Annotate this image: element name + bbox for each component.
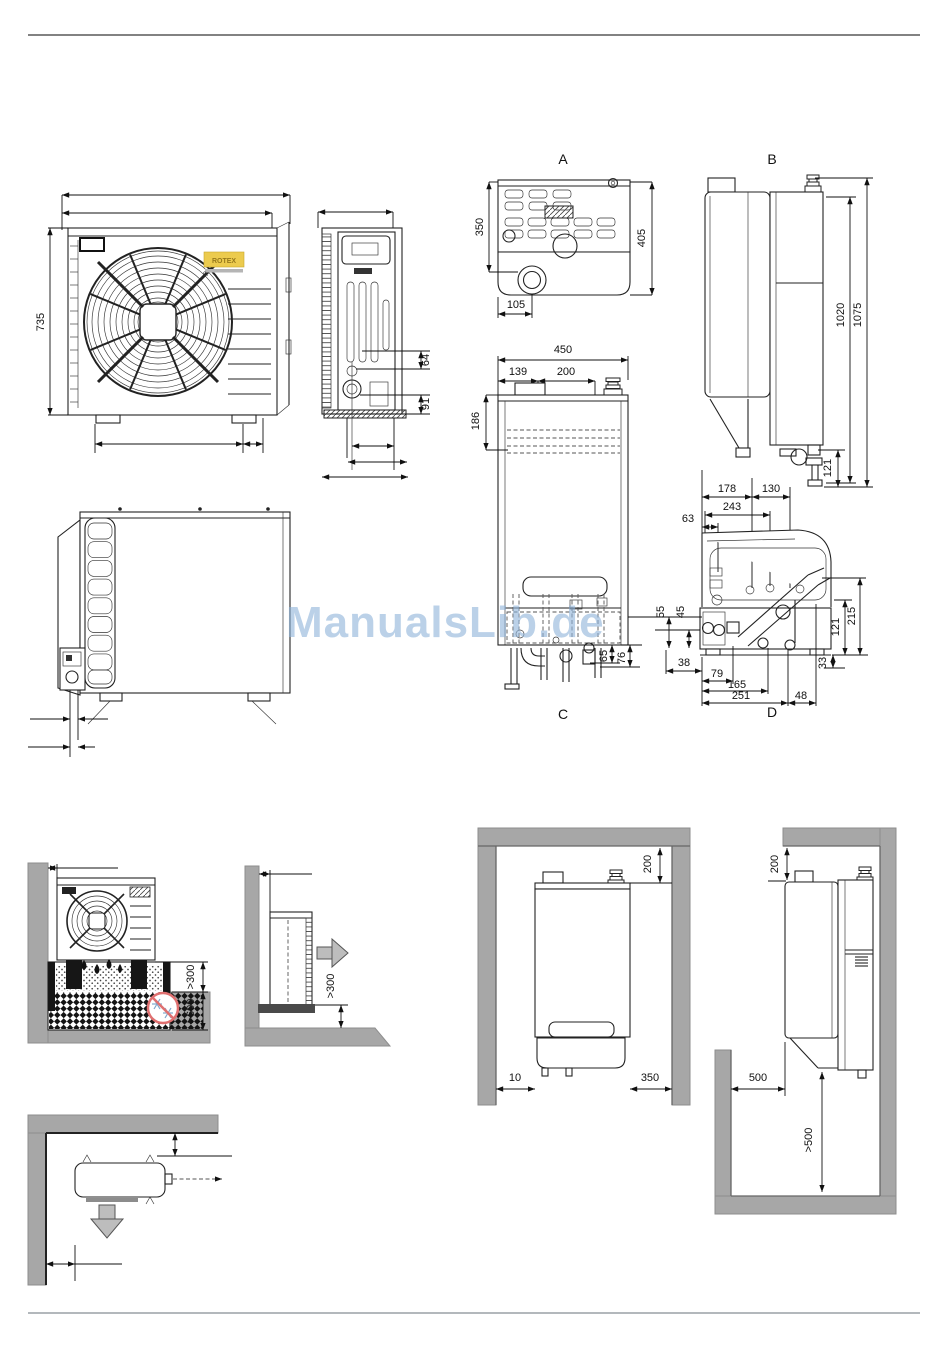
floor [245,1028,390,1046]
wall [880,828,896,1214]
install-clearance-ground: >300 >600 [28,863,210,1043]
plinth-block [131,960,147,989]
fan-hub [140,304,176,340]
dim-label-side-200: 200 [769,855,781,873]
dim-label-d121: 121 [830,618,842,636]
indoor-unit-view-c: C 450 139 200 186 [470,344,642,722]
floor-step [715,1050,731,1198]
dim-label-45: 45 [675,606,687,618]
dim-label-200: 200 [557,366,575,378]
view-label-b: B [767,151,776,167]
indoor-unit-view-a: A 350 405 105 [474,151,652,318]
dim-label-gt300: >300 [185,965,197,990]
mounting-base [258,1004,315,1013]
airflow-arrow-down [91,1205,123,1238]
install-clearance-wall: >300 [245,866,390,1046]
wall [28,863,48,1043]
drawing-mark: 0. [203,271,209,278]
indoor-unit-front-small [535,870,630,1076]
plinth-block [66,960,82,989]
install-clearance-niche: 200 10 350 [478,828,690,1105]
dim-label-450: 450 [554,344,572,356]
install-clearance-side: 200 500 >500 [715,828,896,1214]
dim-label-350: 350 [474,218,486,236]
dim-label-105: 105 [507,299,525,311]
install-clearance-corner [28,1115,232,1285]
left-wall [478,846,496,1105]
brand-name: ROTEX [212,258,236,265]
ceiling [783,828,882,846]
right-wall [672,846,690,1105]
view-label-c: C [558,706,568,722]
connection-pipes [505,643,601,689]
dim-label-33: 33 [817,657,829,669]
bottom-pipes [780,445,822,486]
dim-label-1075: 1075 [852,303,864,327]
dim-label-350: 350 [641,1072,659,1084]
connection-box [60,648,85,690]
outdoor-unit-rear-view [28,507,290,757]
dim-label-48: 48 [795,690,807,702]
floor [715,1196,896,1214]
heat-exchanger-fins [322,234,331,408]
view-label-a: A [558,151,568,167]
dim-label-243: 243 [723,501,741,513]
outdoor-unit-side-small [258,912,315,1013]
ceiling [478,828,690,846]
dim-label-65: 65 [598,650,610,662]
indoor-unit-view-b: B 1020 1075 121 178 130 [702,151,873,588]
dim-label-405: 405 [636,229,648,247]
dim-label-79: 79 [711,668,723,680]
dim-label-121: 121 [822,459,834,477]
outdoor-unit-side-view: 64 91 [318,212,432,477]
dim-label-64: 64 [420,354,432,366]
dim-label-735: 735 [35,313,47,331]
technical-drawing-canvas: ROTEX 0. 735 64 91 [0,0,950,1360]
dim-label-130: 130 [762,483,780,495]
dim-label-gt300-wall: >300 [325,974,337,999]
dim-label-215: 215 [846,607,858,625]
dim-label-76: 76 [616,652,628,664]
dim-label-500: 500 [749,1072,767,1084]
dim-label-38: 38 [678,657,690,669]
dim-label-10: 10 [509,1072,521,1084]
gravel-coarse [49,992,203,1029]
dim-label-gt500: >500 [803,1128,815,1153]
dim-label-186: 186 [470,412,482,430]
outdoor-unit-small [57,878,155,960]
dim-label-91: 91 [420,398,432,410]
outdoor-unit-top-view [75,1155,172,1204]
indoor-unit-view-d: D 243 63 55 45 38 79 165 [628,501,868,720]
dim-label-niche-200: 200 [642,855,654,873]
dim-label-178: 178 [718,483,736,495]
outdoor-unit-front-view: ROTEX 0. 735 [35,195,291,453]
no-frost-icon [148,993,178,1023]
dim-label-139: 139 [509,366,527,378]
rotex-logo: ROTEX [204,252,244,273]
dim-label-55: 55 [655,606,667,618]
view-label-d: D [767,704,777,720]
dim-label-251: 251 [732,690,750,702]
wall [245,866,259,1036]
type-plate [80,238,104,251]
wall-left [28,1133,46,1285]
flue-stub [515,383,545,395]
airflow-arrow [317,939,348,967]
dim-label-1020: 1020 [835,303,847,327]
safety-valve [604,378,622,395]
indoor-unit-side-small [785,867,873,1078]
dim-label-gt600: >600 [185,999,197,1024]
dim-label-63: 63 [682,513,694,525]
wall-top [28,1115,218,1133]
